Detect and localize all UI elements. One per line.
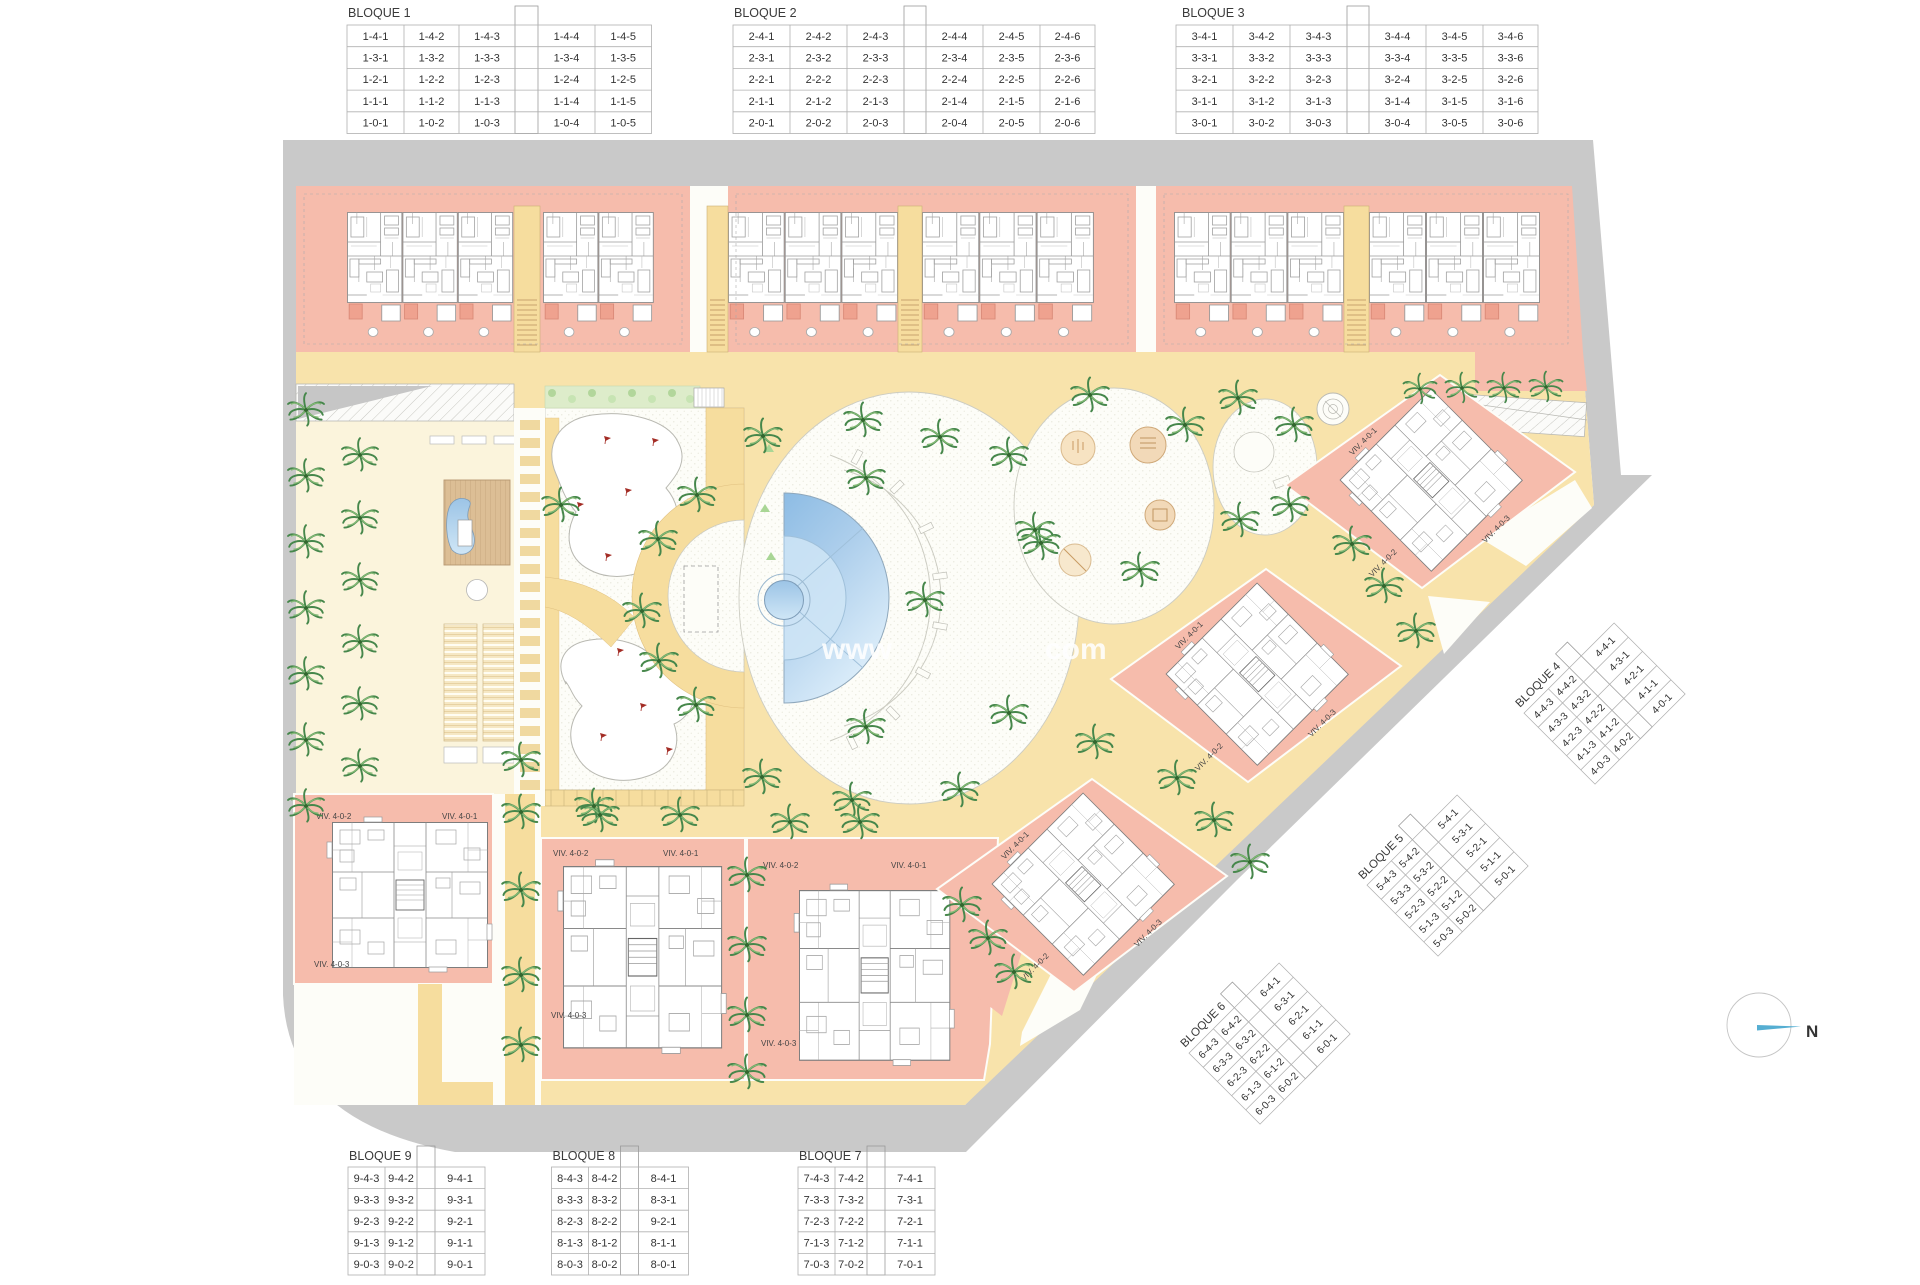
svg-text:7-2-1: 7-2-1 <box>897 1216 923 1228</box>
svg-text:9-2-1: 9-2-1 <box>651 1216 677 1228</box>
svg-text:9-3-2: 9-3-2 <box>388 1194 414 1206</box>
svg-text:3-4-6: 3-4-6 <box>1498 31 1524 43</box>
svg-text:1-1-3: 1-1-3 <box>474 96 500 108</box>
svg-text:1-2-5: 1-2-5 <box>610 74 636 86</box>
svg-text:5-2-3: 5-2-3 <box>1403 897 1428 922</box>
svg-text:7-3-2: 7-3-2 <box>838 1194 864 1206</box>
svg-text:7-4-3: 7-4-3 <box>804 1173 830 1185</box>
svg-text:9-4-1: 9-4-1 <box>447 1173 473 1185</box>
svg-text:6-0-1: 6-0-1 <box>1315 1032 1340 1057</box>
svg-text:9-2-1: 9-2-1 <box>447 1216 473 1228</box>
svg-text:9-1-3: 9-1-3 <box>354 1238 380 1250</box>
svg-text:4-3-2: 4-3-2 <box>1569 688 1594 713</box>
svg-text:6-1-3: 6-1-3 <box>1239 1079 1264 1104</box>
svg-text:2-2-6: 2-2-6 <box>1055 74 1081 86</box>
svg-text:5-2-1: 5-2-1 <box>1465 835 1490 860</box>
svg-text:VIV. 4-0-1: VIV. 4-0-1 <box>663 849 699 858</box>
svg-text:BLOQUE 8: BLOQUE 8 <box>553 1149 616 1163</box>
svg-text:1-3-3: 1-3-3 <box>474 53 500 65</box>
svg-text:BLOQUE 6: BLOQUE 6 <box>1178 1000 1228 1050</box>
svg-text:5-2-2: 5-2-2 <box>1426 874 1451 899</box>
svg-text:1-3-5: 1-3-5 <box>610 53 636 65</box>
svg-text:2-3-5: 2-3-5 <box>999 53 1025 65</box>
svg-text:7-4-2: 7-4-2 <box>838 1173 864 1185</box>
svg-text:6-1-1: 6-1-1 <box>1301 1017 1326 1042</box>
svg-text:3-0-1: 3-0-1 <box>1192 118 1218 130</box>
svg-text:5-0-1: 5-0-1 <box>1493 864 1518 889</box>
svg-text:4-3-1: 4-3-1 <box>1608 649 1633 674</box>
svg-text:4-1-2: 4-1-2 <box>1597 716 1622 741</box>
svg-text:BLOQUE 2: BLOQUE 2 <box>734 6 797 20</box>
svg-text:VIV. 4-0-3: VIV. 4-0-3 <box>314 960 350 969</box>
svg-text:BLOQUE 3: BLOQUE 3 <box>1182 6 1245 20</box>
svg-text:5-4-3: 5-4-3 <box>1375 868 1400 893</box>
svg-text:3-1-1: 3-1-1 <box>1192 96 1218 108</box>
svg-text:9-4-3: 9-4-3 <box>354 1173 380 1185</box>
svg-text:3-2-1: 3-2-1 <box>1192 74 1218 86</box>
svg-text:7-1-3: 7-1-3 <box>804 1238 830 1250</box>
svg-text:BLOQUE 4: BLOQUE 4 <box>1513 659 1564 710</box>
svg-text:6-1-2: 6-1-2 <box>1262 1056 1287 1081</box>
svg-text:9-3-3: 9-3-3 <box>354 1194 380 1206</box>
svg-text:6-3-1: 6-3-1 <box>1273 989 1298 1014</box>
svg-text:8-0-3: 8-0-3 <box>557 1259 583 1271</box>
svg-text:5-3-2: 5-3-2 <box>1412 860 1437 885</box>
svg-text:1-4-3: 1-4-3 <box>474 31 500 43</box>
svg-text:9-0-1: 9-0-1 <box>447 1259 473 1271</box>
svg-text:2-2-3: 2-2-3 <box>863 74 889 86</box>
svg-text:8-1-1: 8-1-1 <box>651 1238 677 1250</box>
svg-text:4-0-2: 4-0-2 <box>1611 730 1636 755</box>
svg-text:8-2-2: 8-2-2 <box>592 1216 618 1228</box>
svg-text:1-0-2: 1-0-2 <box>419 118 445 130</box>
svg-text:1-1-1: 1-1-1 <box>363 96 389 108</box>
svg-text:2-3-1: 2-3-1 <box>749 53 775 65</box>
svg-text:VIV. 4-0-2: VIV. 4-0-2 <box>553 849 589 858</box>
svg-text:4-4-2: 4-4-2 <box>1554 674 1579 699</box>
svg-text:2-1-1: 2-1-1 <box>749 96 775 108</box>
svg-text:4-0-3: 4-0-3 <box>1589 753 1614 778</box>
svg-text:7-4-1: 7-4-1 <box>897 1173 923 1185</box>
svg-text:5-1-2: 5-1-2 <box>1440 888 1465 913</box>
svg-text:9-0-2: 9-0-2 <box>388 1259 414 1271</box>
svg-text:9-4-2: 9-4-2 <box>388 1173 414 1185</box>
svg-text:6-4-1: 6-4-1 <box>1258 975 1283 1000</box>
svg-text:1-2-3: 1-2-3 <box>474 74 500 86</box>
svg-text:3-3-6: 3-3-6 <box>1498 53 1524 65</box>
svg-text:VIV. 4-0-1: VIV. 4-0-1 <box>891 861 927 870</box>
svg-text:6-2-1: 6-2-1 <box>1287 1003 1312 1028</box>
svg-text:2-4-6: 2-4-6 <box>1055 31 1081 43</box>
svg-text:3-3-2: 3-3-2 <box>1249 53 1275 65</box>
svg-text:9-2-3: 9-2-3 <box>354 1216 380 1228</box>
svg-text:3-0-5: 3-0-5 <box>1442 118 1468 130</box>
svg-text:7-1-2: 7-1-2 <box>838 1238 864 1250</box>
svg-text:1-3-1: 1-3-1 <box>363 53 389 65</box>
svg-text:1-1-4: 1-1-4 <box>554 96 580 108</box>
svg-text:2-3-3: 2-3-3 <box>863 53 889 65</box>
svg-text:4-3-3: 4-3-3 <box>1546 711 1571 736</box>
svg-text:3-0-2: 3-0-2 <box>1249 118 1275 130</box>
svg-text:3-2-3: 3-2-3 <box>1306 74 1332 86</box>
svg-text:3-1-6: 3-1-6 <box>1498 96 1524 108</box>
svg-text:5-3-1: 5-3-1 <box>1451 821 1476 846</box>
svg-text:2-4-3: 2-4-3 <box>863 31 889 43</box>
svg-text:7-0-3: 7-0-3 <box>804 1259 830 1271</box>
svg-text:2-2-1: 2-2-1 <box>749 74 775 86</box>
svg-text:2-0-3: 2-0-3 <box>863 118 889 130</box>
svg-text:5-1-3: 5-1-3 <box>1417 911 1442 936</box>
svg-text:2-1-2: 2-1-2 <box>806 96 832 108</box>
svg-text:5-3-3: 5-3-3 <box>1389 883 1414 908</box>
svg-text:8-1-3: 8-1-3 <box>557 1238 583 1250</box>
svg-text:2-2-2: 2-2-2 <box>806 74 832 86</box>
svg-text:.spainhouses.: .spainhouses. <box>893 633 1041 666</box>
svg-text:8-3-3: 8-3-3 <box>557 1194 583 1206</box>
svg-text:8-0-1: 8-0-1 <box>651 1259 677 1271</box>
svg-text:7-1-1: 7-1-1 <box>897 1238 923 1250</box>
svg-text:3-2-2: 3-2-2 <box>1249 74 1275 86</box>
svg-text:3-2-6: 3-2-6 <box>1498 74 1524 86</box>
svg-text:3-1-3: 3-1-3 <box>1306 96 1332 108</box>
svg-text:1-0-1: 1-0-1 <box>363 118 389 130</box>
svg-text:3-1-5: 3-1-5 <box>1442 96 1468 108</box>
svg-text:2-4-2: 2-4-2 <box>806 31 832 43</box>
svg-text:9-2-2: 9-2-2 <box>388 1216 414 1228</box>
svg-text:2-0-6: 2-0-6 <box>1055 118 1081 130</box>
svg-text:1-4-2: 1-4-2 <box>419 31 445 43</box>
svg-text:7-2-3: 7-2-3 <box>804 1216 830 1228</box>
svg-text:1-0-3: 1-0-3 <box>474 118 500 130</box>
svg-text:1-2-4: 1-2-4 <box>554 74 580 86</box>
svg-text:9-3-1: 9-3-1 <box>447 1194 473 1206</box>
svg-text:3-3-4: 3-3-4 <box>1385 53 1411 65</box>
svg-text:2-0-1: 2-0-1 <box>749 118 775 130</box>
svg-text:3-4-3: 3-4-3 <box>1306 31 1332 43</box>
svg-text:1-2-2: 1-2-2 <box>419 74 445 86</box>
svg-text:2-4-5: 2-4-5 <box>999 31 1025 43</box>
svg-text:7-0-1: 7-0-1 <box>897 1259 923 1271</box>
svg-text:VIV. 4-0-3: VIV. 4-0-3 <box>761 1039 797 1048</box>
svg-text:1-4-5: 1-4-5 <box>610 31 636 43</box>
svg-text:5-4-1: 5-4-1 <box>1436 807 1461 832</box>
svg-text:3-0-4: 3-0-4 <box>1385 118 1411 130</box>
svg-text:5-4-2: 5-4-2 <box>1397 846 1422 871</box>
svg-text:BLOQUE 1: BLOQUE 1 <box>348 6 411 20</box>
svg-text:1-3-4: 1-3-4 <box>554 53 580 65</box>
svg-text:6-2-3: 6-2-3 <box>1225 1065 1250 1090</box>
svg-text:8-3-1: 8-3-1 <box>651 1194 677 1206</box>
svg-text:2-4-1: 2-4-1 <box>749 31 775 43</box>
svg-text:6-0-2: 6-0-2 <box>1276 1070 1301 1095</box>
svg-text:9-0-3: 9-0-3 <box>354 1259 380 1271</box>
svg-text:BLOQUE 7: BLOQUE 7 <box>799 1149 862 1163</box>
svg-text:3-0-3: 3-0-3 <box>1306 118 1332 130</box>
svg-text:7-0-2: 7-0-2 <box>838 1259 864 1271</box>
svg-text:3-1-2: 3-1-2 <box>1249 96 1275 108</box>
svg-text:2-3-6: 2-3-6 <box>1055 53 1081 65</box>
svg-text:3-3-5: 3-3-5 <box>1442 53 1468 65</box>
svg-text:4-4-1: 4-4-1 <box>1593 635 1618 660</box>
svg-text:2-2-4: 2-2-4 <box>942 74 968 86</box>
svg-text:3-4-5: 3-4-5 <box>1442 31 1468 43</box>
svg-text:5-0-3: 5-0-3 <box>1432 925 1457 950</box>
svg-text:3-4-1: 3-4-1 <box>1192 31 1218 43</box>
svg-text:4-1-3: 4-1-3 <box>1574 739 1599 764</box>
svg-text:2-1-4: 2-1-4 <box>942 96 968 108</box>
svg-text:9-1-2: 9-1-2 <box>388 1238 414 1250</box>
svg-text:2-1-6: 2-1-6 <box>1055 96 1081 108</box>
svg-text:3-4-2: 3-4-2 <box>1249 31 1275 43</box>
svg-text:1-4-4: 1-4-4 <box>554 31 580 43</box>
svg-text:2-0-5: 2-0-5 <box>999 118 1025 130</box>
svg-text:2-0-4: 2-0-4 <box>942 118 968 130</box>
svg-text:1-1-5: 1-1-5 <box>610 96 636 108</box>
svg-text:4-0-1: 4-0-1 <box>1650 692 1675 717</box>
svg-text:5-1-1: 5-1-1 <box>1479 849 1504 874</box>
svg-text:4-2-1: 4-2-1 <box>1622 663 1647 688</box>
svg-text:8-4-2: 8-4-2 <box>592 1173 618 1185</box>
svg-text:2-4-4: 2-4-4 <box>942 31 968 43</box>
svg-text:8-4-3: 8-4-3 <box>557 1173 583 1185</box>
svg-text:3-2-5: 3-2-5 <box>1442 74 1468 86</box>
svg-text:9-1-1: 9-1-1 <box>447 1238 473 1250</box>
svg-text:3-3-1: 3-3-1 <box>1192 53 1218 65</box>
svg-text:VIV. 4-0-3: VIV. 4-0-3 <box>551 1011 587 1020</box>
svg-text:2-3-2: 2-3-2 <box>806 53 832 65</box>
svg-text:7-2-2: 7-2-2 <box>838 1216 864 1228</box>
svg-text:3-2-4: 3-2-4 <box>1385 74 1411 86</box>
svg-text:2-1-5: 2-1-5 <box>999 96 1025 108</box>
svg-text:8-1-2: 8-1-2 <box>592 1238 618 1250</box>
svg-text:VIV. 4-0-2: VIV. 4-0-2 <box>763 861 799 870</box>
svg-text:www: www <box>821 633 893 666</box>
svg-text:6-3-3: 6-3-3 <box>1211 1051 1236 1076</box>
svg-text:4-1-1: 4-1-1 <box>1636 677 1661 702</box>
svg-text:4-2-3: 4-2-3 <box>1560 725 1585 750</box>
svg-text:3-3-3: 3-3-3 <box>1306 53 1332 65</box>
svg-text:1-2-1: 1-2-1 <box>363 74 389 86</box>
svg-text:3-0-6: 3-0-6 <box>1498 118 1524 130</box>
svg-text:3-4-4: 3-4-4 <box>1385 31 1411 43</box>
svg-text:1-3-2: 1-3-2 <box>419 53 445 65</box>
svg-text:8-4-1: 8-4-1 <box>651 1173 677 1185</box>
svg-text:8-0-2: 8-0-2 <box>592 1259 618 1271</box>
svg-text:8-3-2: 8-3-2 <box>592 1194 618 1206</box>
svg-text:3-1-4: 3-1-4 <box>1385 96 1411 108</box>
svg-text:1-0-5: 1-0-5 <box>610 118 636 130</box>
svg-text:6-2-2: 6-2-2 <box>1248 1042 1273 1067</box>
svg-text:BLOQUE 5: BLOQUE 5 <box>1356 832 1406 882</box>
svg-text:5-0-2: 5-0-2 <box>1454 902 1479 927</box>
svg-text:4-2-2: 4-2-2 <box>1583 702 1608 727</box>
svg-text:BLOQUE 9: BLOQUE 9 <box>349 1149 412 1163</box>
svg-text:4-4-3: 4-4-3 <box>1532 696 1557 721</box>
svg-text:8-2-3: 8-2-3 <box>557 1216 583 1228</box>
svg-text:1-4-1: 1-4-1 <box>363 31 389 43</box>
svg-text:2-0-2: 2-0-2 <box>806 118 832 130</box>
svg-text:com: com <box>1045 633 1107 666</box>
svg-text:2-2-5: 2-2-5 <box>999 74 1025 86</box>
svg-text:1-0-4: 1-0-4 <box>554 118 580 130</box>
svg-text:VIV. 4-0-1: VIV. 4-0-1 <box>442 812 478 821</box>
svg-text:1-1-2: 1-1-2 <box>419 96 445 108</box>
svg-text:6-4-3: 6-4-3 <box>1197 1036 1222 1061</box>
svg-text:2-3-4: 2-3-4 <box>942 53 968 65</box>
svg-text:2-1-3: 2-1-3 <box>863 96 889 108</box>
svg-text:6-4-2: 6-4-2 <box>1219 1014 1244 1039</box>
svg-text:6-0-3: 6-0-3 <box>1254 1093 1279 1118</box>
svg-text:6-3-2: 6-3-2 <box>1234 1028 1259 1053</box>
svg-text:7-3-1: 7-3-1 <box>897 1194 923 1206</box>
svg-text:N: N <box>1806 1022 1818 1041</box>
svg-text:7-3-3: 7-3-3 <box>804 1194 830 1206</box>
